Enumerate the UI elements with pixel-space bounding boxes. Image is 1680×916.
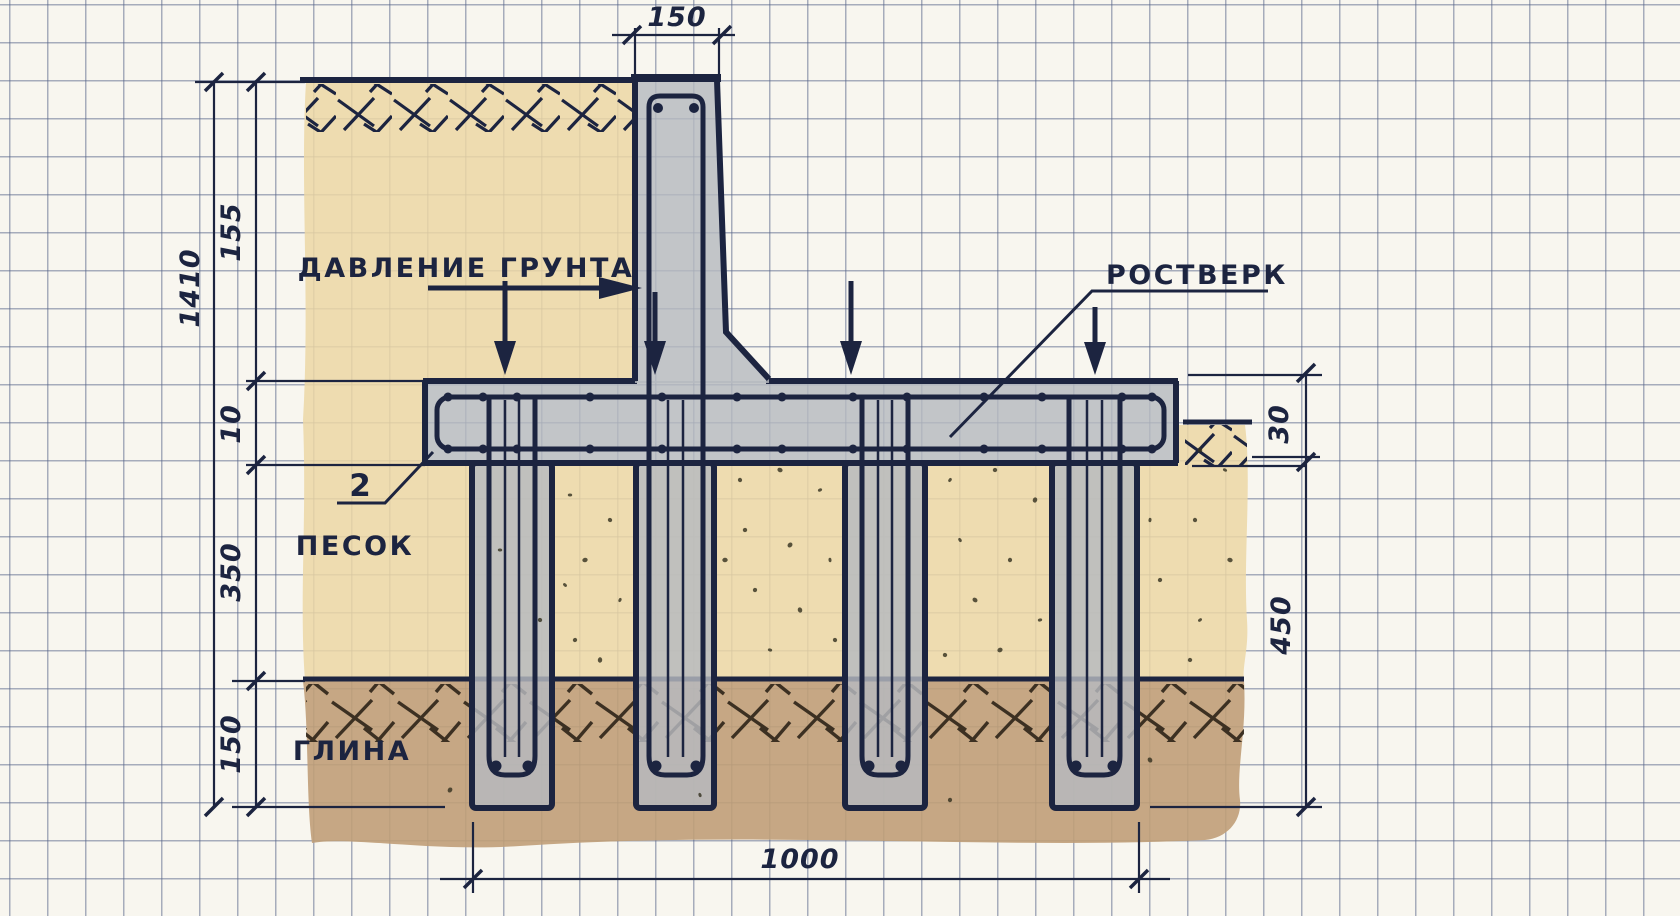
pile-1 xyxy=(472,463,552,808)
ground-hatching-left xyxy=(306,84,632,132)
sand-label: ПЕСОК xyxy=(296,531,414,562)
clay-label: ГЛИНА xyxy=(293,736,411,767)
wall-rebar-dot xyxy=(653,103,663,113)
dim-right-30-value: 30 xyxy=(1264,404,1295,444)
dim-right-450-value: 450 xyxy=(1266,595,1297,655)
wall-rebar-dot xyxy=(689,103,699,113)
ground-hatching-right xyxy=(1185,425,1247,465)
dim-left-1410-value: 1410 xyxy=(175,248,206,327)
load-arrow-3 xyxy=(840,281,862,375)
ground-surface-left xyxy=(300,80,637,132)
pile-3 xyxy=(845,463,925,808)
dim-left-350-value: 350 xyxy=(216,542,247,601)
pile-4 xyxy=(1052,463,1137,808)
ground-surface-right xyxy=(1183,422,1252,465)
soil-pressure-label: ДАВЛЕНИЕ ГРУНТА xyxy=(298,253,635,284)
load-arrow-4 xyxy=(1084,307,1106,375)
dim-left-10-value: 10 xyxy=(216,404,247,444)
callout-2-label: 2 xyxy=(349,468,371,504)
grillage-label: РОСТВЕРК xyxy=(1106,260,1288,291)
dim-top-150-value: 150 xyxy=(647,2,706,33)
dim-bottom-1000-value: 1000 xyxy=(760,844,839,875)
dim-left-150-value: 150 xyxy=(216,714,247,773)
retaining-wall xyxy=(631,78,769,383)
foundation-diagram: ДАВЛЕНИЕ ГРУНТА РОСТВЕРК 2 ПЕСОК ГЛИНА 1… xyxy=(0,0,1680,916)
drawing-canvas: ДАВЛЕНИЕ ГРУНТА РОСТВЕРК 2 ПЕСОК ГЛИНА 1… xyxy=(0,0,1680,916)
dim-left-155-value: 155 xyxy=(216,202,247,261)
wall-right-edge xyxy=(717,80,769,379)
dim-top-150: 150 xyxy=(612,2,735,76)
